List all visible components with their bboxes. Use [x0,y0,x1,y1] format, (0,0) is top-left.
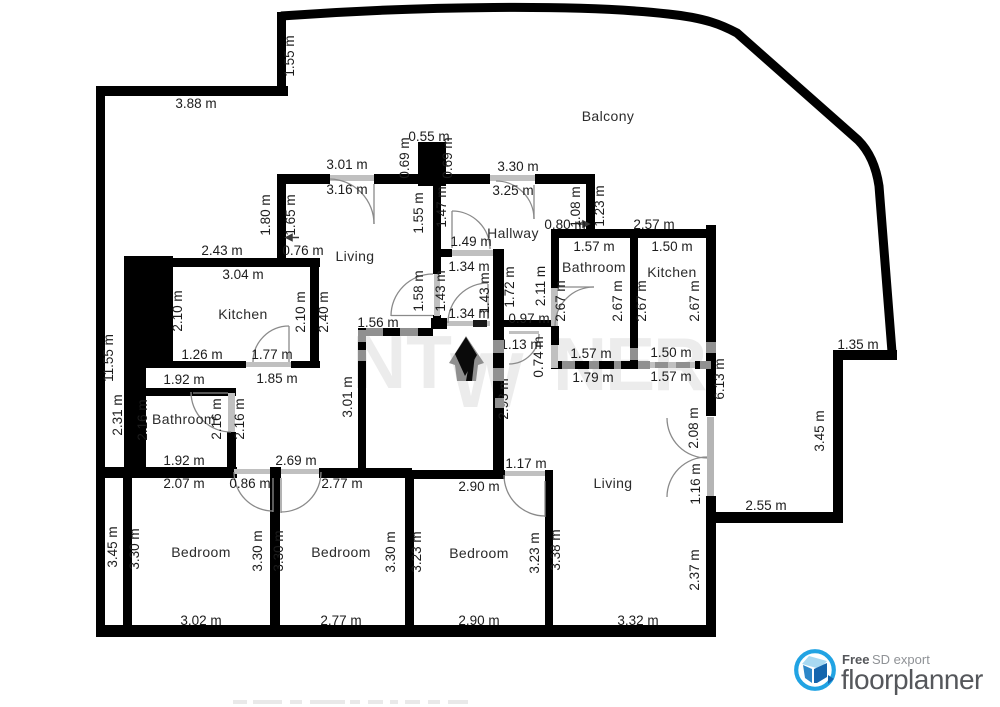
svg-text:2.16 m: 2.16 m [209,398,224,439]
svg-text:floorplanner: floorplanner [841,664,983,695]
svg-text:1.72 m: 1.72 m [502,266,517,307]
svg-text:2.10 m: 2.10 m [170,290,185,331]
svg-text:11.55 m: 11.55 m [101,334,116,382]
svg-text:0.76 m: 0.76 m [282,243,323,258]
svg-text:3.30 m: 3.30 m [127,528,142,569]
svg-text:0.86 m: 0.86 m [229,476,270,491]
svg-text:Bathroom: Bathroom [152,411,216,427]
svg-text:1.56 m: 1.56 m [357,315,398,330]
svg-text:3.30 m: 3.30 m [383,531,398,572]
svg-text:1.49 m: 1.49 m [450,234,491,249]
svg-text:2.90 m: 2.90 m [458,613,499,628]
svg-text:2.43 m: 2.43 m [201,243,242,258]
svg-text:1.50 m: 1.50 m [651,239,692,254]
svg-text:1.43 m: 1.43 m [477,272,492,313]
svg-text:3.01 m: 3.01 m [340,376,355,417]
svg-text:1.85 m: 1.85 m [256,371,297,386]
svg-text:3.30 m: 3.30 m [250,530,265,571]
svg-text:1.57 m: 1.57 m [570,346,611,361]
svg-text:3.04 m: 3.04 m [222,267,263,282]
svg-text:2.31 m: 2.31 m [110,394,125,435]
svg-text:1.47 m: 1.47 m [434,186,449,227]
svg-text:1.55 m: 1.55 m [411,192,426,233]
svg-text:2.67 m: 2.67 m [553,280,568,321]
svg-text:1.77 m: 1.77 m [251,347,292,362]
svg-text:Bedroom: Bedroom [311,544,371,560]
svg-text:0.69 m: 0.69 m [440,137,455,178]
svg-text:3.25 m: 3.25 m [492,183,533,198]
svg-text:2.07 m: 2.07 m [163,476,204,491]
svg-text:1.26 m: 1.26 m [181,347,222,362]
svg-text:2.69 m: 2.69 m [275,453,316,468]
svg-text:1.65 m: 1.65 m [283,194,298,235]
svg-text:0.97 m: 0.97 m [508,311,549,326]
svg-text:1.17 m: 1.17 m [505,456,546,471]
svg-text:1.23 m: 1.23 m [592,185,607,226]
svg-text:1.34 m: 1.34 m [448,259,489,274]
svg-text:3.32 m: 3.32 m [617,613,658,628]
svg-text:2.08 m: 2.08 m [686,407,701,448]
svg-text:3.16 m: 3.16 m [326,182,367,197]
svg-text:2.90 m: 2.90 m [458,479,499,494]
svg-text:6.13 m: 6.13 m [712,358,727,399]
svg-text:2.10 m: 2.10 m [293,291,308,332]
svg-text:Kitchen: Kitchen [647,264,697,280]
svg-text:2.77 m: 2.77 m [321,476,362,491]
svg-text:2.67 m: 2.67 m [610,280,625,321]
svg-text:3.45 m: 3.45 m [105,526,120,567]
svg-text:1.79 m: 1.79 m [572,370,613,385]
svg-text:2.11 m: 2.11 m [533,266,548,306]
svg-text:3.23 m: 3.23 m [409,531,424,572]
svg-text:2.67 m: 2.67 m [687,280,702,321]
svg-text:3.02 m: 3.02 m [180,613,221,628]
svg-text:1.58 m: 1.58 m [411,270,426,311]
svg-text:Living: Living [336,248,375,264]
svg-text:2.16 m: 2.16 m [232,398,247,439]
svg-text:3.01 m: 3.01 m [326,157,367,172]
svg-text:1.08 m: 1.08 m [568,186,583,227]
svg-text:1.55 m: 1.55 m [282,35,297,76]
svg-text:2.16 m: 2.16 m [135,399,150,440]
svg-text:3.88 m: 3.88 m [175,96,216,111]
svg-text:Bedroom: Bedroom [171,544,231,560]
svg-text:2.40 m: 2.40 m [316,291,331,332]
svg-text:3.23 m: 3.23 m [527,532,542,573]
svg-text:1.80 m: 1.80 m [258,194,273,235]
svg-text:3.45 m: 3.45 m [812,410,827,451]
svg-text:2.77 m: 2.77 m [320,613,361,628]
svg-text:1.50 m: 1.50 m [650,345,691,360]
svg-text:Bedroom: Bedroom [449,545,509,561]
svg-text:2.67 m: 2.67 m [634,280,649,321]
svg-text:Hallway: Hallway [487,225,539,241]
svg-text:Living: Living [594,475,633,491]
svg-text:1.35 m: 1.35 m [837,337,878,352]
svg-text:3.38 m: 3.38 m [548,529,563,570]
svg-text:1.16 m: 1.16 m [688,463,703,504]
svg-text:3.30 m: 3.30 m [497,159,538,174]
svg-text:Balcony: Balcony [582,108,635,124]
svg-text:0.74 m: 0.74 m [531,336,546,377]
svg-text:1.92 m: 1.92 m [163,372,204,387]
svg-text:Kitchen: Kitchen [218,306,268,322]
svg-text:Bathroom: Bathroom [562,259,626,275]
svg-text:2.55 m: 2.55 m [745,498,786,513]
svg-text:2.37 m: 2.37 m [687,549,702,590]
svg-text:0.69 m: 0.69 m [397,137,412,178]
svg-text:1.43 m: 1.43 m [433,270,448,311]
svg-text:1.57 m: 1.57 m [650,369,691,384]
svg-text:1.57 m: 1.57 m [573,239,614,254]
svg-text:3.30 m: 3.30 m [271,530,286,571]
svg-text:1.92 m: 1.92 m [163,453,204,468]
svg-text:2.57 m: 2.57 m [633,217,674,232]
